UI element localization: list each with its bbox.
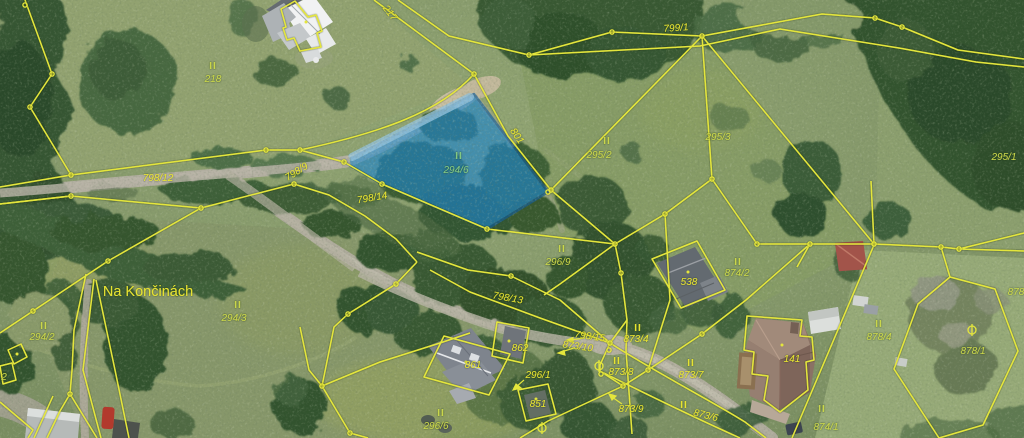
svg-text:II: II xyxy=(437,408,445,419)
svg-text:II: II xyxy=(687,358,695,369)
svg-text:862: 862 xyxy=(512,343,529,354)
svg-text:II: II xyxy=(734,257,742,268)
svg-text:II: II xyxy=(209,61,217,72)
svg-text:878: 878 xyxy=(1008,287,1024,298)
svg-text:874/2: 874/2 xyxy=(724,268,749,279)
svg-text:295/1: 295/1 xyxy=(990,152,1016,163)
svg-text:873/4: 873/4 xyxy=(623,334,648,345)
svg-text:861: 861 xyxy=(465,360,482,371)
svg-text:141: 141 xyxy=(784,354,801,365)
svg-text:873/8: 873/8 xyxy=(608,367,633,378)
svg-text:II: II xyxy=(455,151,463,162)
svg-text:878/1: 878/1 xyxy=(960,346,985,357)
svg-text:799/1: 799/1 xyxy=(663,22,689,35)
svg-text:II: II xyxy=(613,356,621,367)
svg-text:II: II xyxy=(234,300,242,311)
svg-text:294/3: 294/3 xyxy=(220,313,246,324)
svg-text:851: 851 xyxy=(530,399,547,410)
svg-text:2: 2 xyxy=(0,372,7,383)
svg-text:296/1: 296/1 xyxy=(524,370,550,381)
svg-text:798/12: 798/12 xyxy=(143,173,174,184)
svg-text:218: 218 xyxy=(204,74,222,85)
svg-text:II: II xyxy=(603,136,611,147)
svg-text:294/2: 294/2 xyxy=(28,332,54,343)
svg-text:296/6: 296/6 xyxy=(422,421,448,432)
svg-text:II: II xyxy=(818,404,826,415)
svg-text:295/3: 295/3 xyxy=(704,132,730,143)
svg-text:873/7: 873/7 xyxy=(678,370,703,381)
svg-text:II: II xyxy=(558,244,566,255)
svg-text:II: II xyxy=(875,319,883,330)
svg-text:II: II xyxy=(40,321,48,332)
svg-text:Na Končinách: Na Končinách xyxy=(103,284,193,300)
svg-text:874/1: 874/1 xyxy=(813,422,838,433)
svg-text:873/9: 873/9 xyxy=(618,404,643,415)
svg-text:II: II xyxy=(634,323,642,334)
svg-text:538: 538 xyxy=(681,277,698,288)
svg-text:295/2: 295/2 xyxy=(585,150,611,161)
svg-text:296/9: 296/9 xyxy=(544,257,570,268)
svg-text:294/6: 294/6 xyxy=(442,165,468,176)
svg-text:878/4: 878/4 xyxy=(866,332,891,343)
svg-text:II: II xyxy=(680,400,688,411)
